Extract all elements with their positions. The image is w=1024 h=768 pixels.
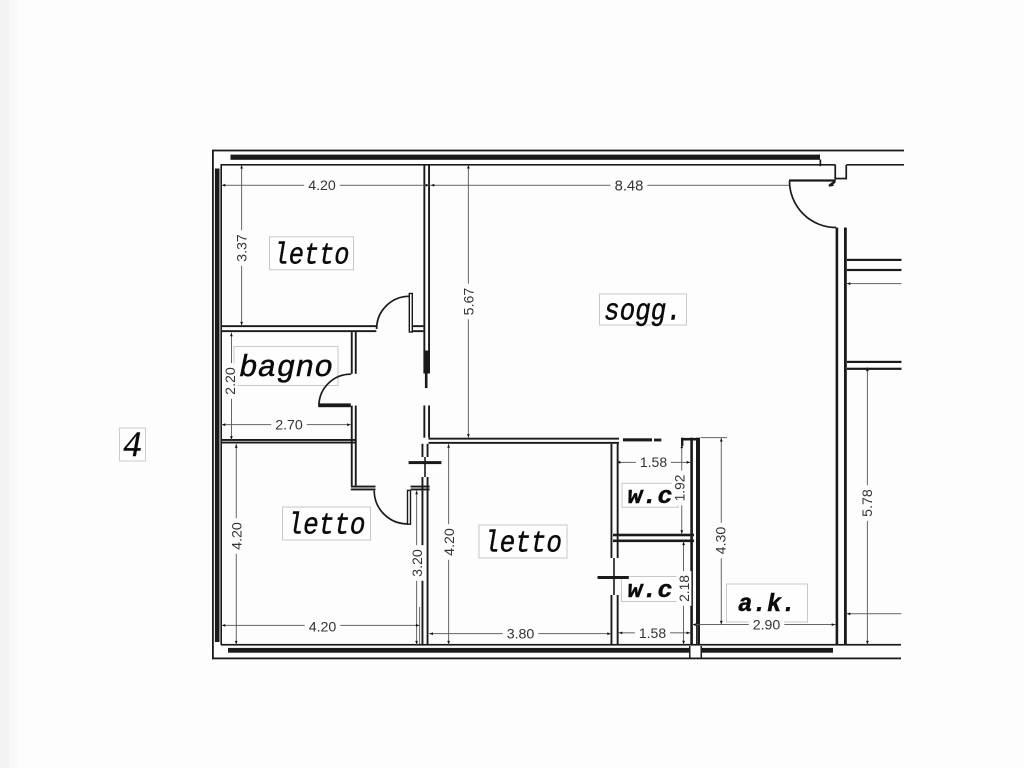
svg-text:3.37: 3.37: [235, 234, 251, 262]
svg-text:4.20: 4.20: [442, 528, 458, 556]
svg-text:1.58: 1.58: [640, 454, 667, 470]
svg-text:letto: letto: [274, 239, 350, 274]
svg-text:8.48: 8.48: [615, 178, 644, 194]
svg-text:w.c: w.c: [628, 484, 673, 511]
svg-text:5.67: 5.67: [461, 288, 477, 316]
svg-text:1.58: 1.58: [639, 625, 666, 641]
svg-text:sogg.: sogg.: [604, 295, 682, 330]
svg-text:4.20: 4.20: [309, 619, 337, 635]
svg-text:letto: letto: [288, 509, 366, 544]
svg-text:4.20: 4.20: [229, 522, 245, 550]
svg-text:2.20: 2.20: [223, 367, 239, 395]
svg-text:w.c: w.c: [628, 578, 673, 605]
svg-text:2.18: 2.18: [677, 575, 692, 602]
svg-text:1.92: 1.92: [672, 475, 687, 502]
svg-text:4.20: 4.20: [308, 178, 336, 194]
svg-text:3.80: 3.80: [507, 627, 535, 643]
svg-text:bagno: bagno: [239, 351, 333, 386]
svg-text:a.k.: a.k.: [738, 590, 796, 619]
svg-text:2.70: 2.70: [275, 418, 303, 434]
svg-text:letto: letto: [484, 527, 562, 562]
svg-text:3.20: 3.20: [410, 549, 426, 577]
svg-text:2.90: 2.90: [753, 618, 781, 634]
svg-text:5.78: 5.78: [860, 489, 876, 517]
svg-text:4: 4: [124, 424, 142, 464]
svg-text:4.30: 4.30: [714, 527, 730, 555]
